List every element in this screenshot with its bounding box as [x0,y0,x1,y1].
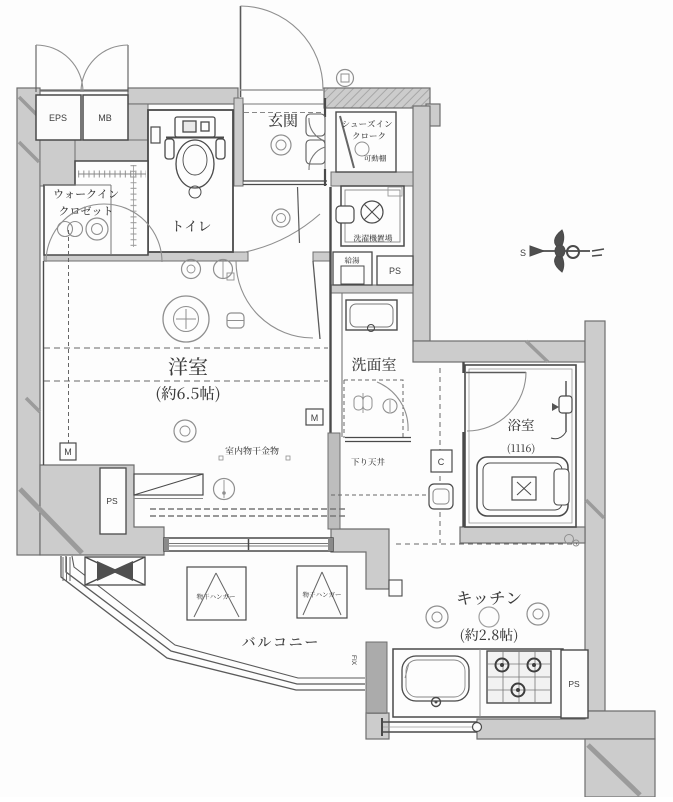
svg-text:EPS: EPS [49,113,67,123]
svg-text:M: M [64,447,72,457]
svg-text:C: C [438,457,445,467]
svg-text:PS: PS [389,266,401,276]
svg-text:M: M [311,413,319,423]
svg-text:PS: PS [106,496,118,506]
svg-text:S: S [520,248,526,258]
svg-text:FIX: FIX [350,655,357,666]
svg-text:MB: MB [98,113,112,123]
svg-text:PS: PS [568,679,580,689]
